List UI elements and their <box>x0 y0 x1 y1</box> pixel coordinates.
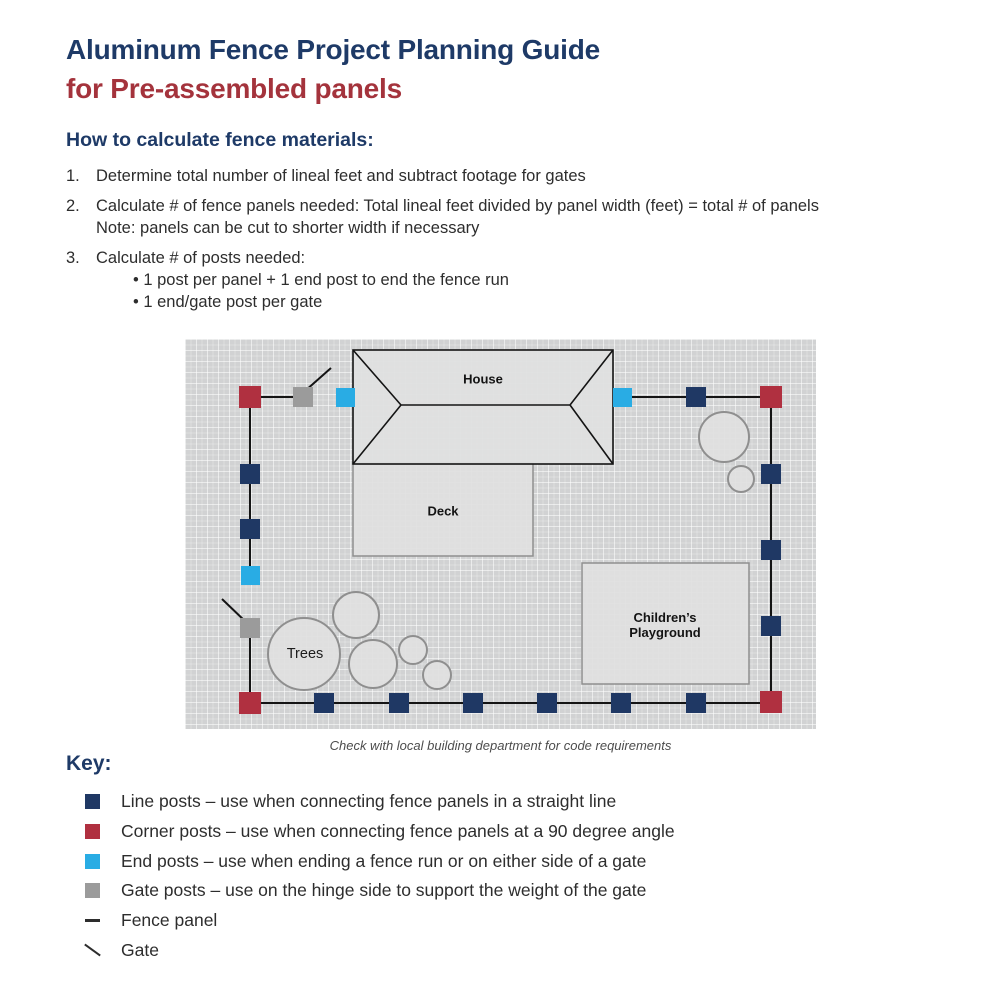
key-items: Line posts – use when connecting fence p… <box>66 787 675 965</box>
step-item: 3.Calculate # of posts needed:1 post per… <box>66 247 966 313</box>
line-post-marker <box>389 693 409 713</box>
page-subtitle: for Pre-assembled panels <box>66 69 600 108</box>
end-post-marker <box>613 388 632 407</box>
line-post-marker <box>314 693 334 713</box>
key-item: Gate posts – use on the hinge side to su… <box>66 876 675 906</box>
step-number: 3. <box>66 247 96 313</box>
step-item: 2.Calculate # of fence panels needed: To… <box>66 195 966 239</box>
line-post-marker <box>761 540 781 560</box>
gate-post-marker <box>240 618 260 638</box>
line-post-marker <box>537 693 557 713</box>
key-item: Line posts – use when connecting fence p… <box>66 787 675 817</box>
trees-label: Trees <box>287 646 324 662</box>
line-post-marker <box>611 693 631 713</box>
deck-label: Deck <box>427 504 458 519</box>
key-section: Key: Line posts – use when connecting fe… <box>66 752 675 965</box>
key-item-label: Gate <box>121 940 159 961</box>
diagram-caption: Check with local building department for… <box>185 738 816 753</box>
key-item-label: Corner posts – use when connecting fence… <box>121 821 675 842</box>
line-post-marker <box>240 519 260 539</box>
line-post-marker <box>761 464 781 484</box>
site-plan-diagram: House Deck Trees Children’s Playground <box>185 339 816 729</box>
house-label: House <box>463 372 503 387</box>
key-item: Fence panel <box>66 906 675 936</box>
how-to-section: How to calculate fence materials: 1.Dete… <box>66 129 966 321</box>
key-item-label: Fence panel <box>121 910 217 931</box>
key-item-label: End posts – use when ending a fence run … <box>121 851 646 872</box>
line-post-marker <box>240 464 260 484</box>
corner-post-marker <box>239 386 261 408</box>
step-number: 2. <box>66 195 96 239</box>
step-bullets: 1 post per panel + 1 end post to end the… <box>96 269 966 313</box>
step-text: Calculate # of posts needed:1 post per p… <box>96 247 966 313</box>
key-item: End posts – use when ending a fence run … <box>66 846 675 876</box>
key-heading: Key: <box>66 752 675 776</box>
playground-label: Children’s Playground <box>615 610 715 640</box>
gate-post-marker <box>293 387 313 407</box>
line-post-icon <box>85 794 100 809</box>
step-note: Note: panels can be cut to shorter width… <box>96 217 966 239</box>
end-post-marker <box>241 566 260 585</box>
key-item: Corner posts – use when connecting fence… <box>66 817 675 847</box>
playground-label-line2: Playground <box>615 625 715 640</box>
line-post-marker <box>686 693 706 713</box>
corner-post-marker <box>239 692 261 714</box>
line-post-marker <box>761 616 781 636</box>
step-number: 1. <box>66 165 96 187</box>
corner-post-icon <box>85 824 100 839</box>
fence-panel-icon <box>85 913 100 928</box>
how-to-heading: How to calculate fence materials: <box>66 129 966 152</box>
line-post-marker <box>463 693 483 713</box>
post-markers <box>185 339 816 729</box>
gate-post-icon <box>85 883 100 898</box>
key-item-label: Line posts – use when connecting fence p… <box>121 791 616 812</box>
end-post-icon <box>85 854 100 869</box>
step-text: Calculate # of fence panels needed: Tota… <box>96 195 966 239</box>
line-post-marker <box>686 387 706 407</box>
step-bullet-item: 1 post per panel + 1 end post to end the… <box>133 269 966 291</box>
document-header: Aluminum Fence Project Planning Guide fo… <box>66 30 600 108</box>
end-post-marker <box>336 388 355 407</box>
key-item-label: Gate posts – use on the hinge side to su… <box>121 880 646 901</box>
step-item: 1.Determine total number of lineal feet … <box>66 165 966 187</box>
corner-post-marker <box>760 691 782 713</box>
corner-post-marker <box>760 386 782 408</box>
step-text: Determine total number of lineal feet an… <box>96 165 966 187</box>
page-title: Aluminum Fence Project Planning Guide <box>66 30 600 69</box>
gate-icon <box>85 943 100 958</box>
step-bullet-item: 1 end/gate post per gate <box>133 291 966 313</box>
key-item: Gate <box>66 935 675 965</box>
how-to-steps: 1.Determine total number of lineal feet … <box>66 165 966 313</box>
playground-label-line1: Children’s <box>615 610 715 625</box>
